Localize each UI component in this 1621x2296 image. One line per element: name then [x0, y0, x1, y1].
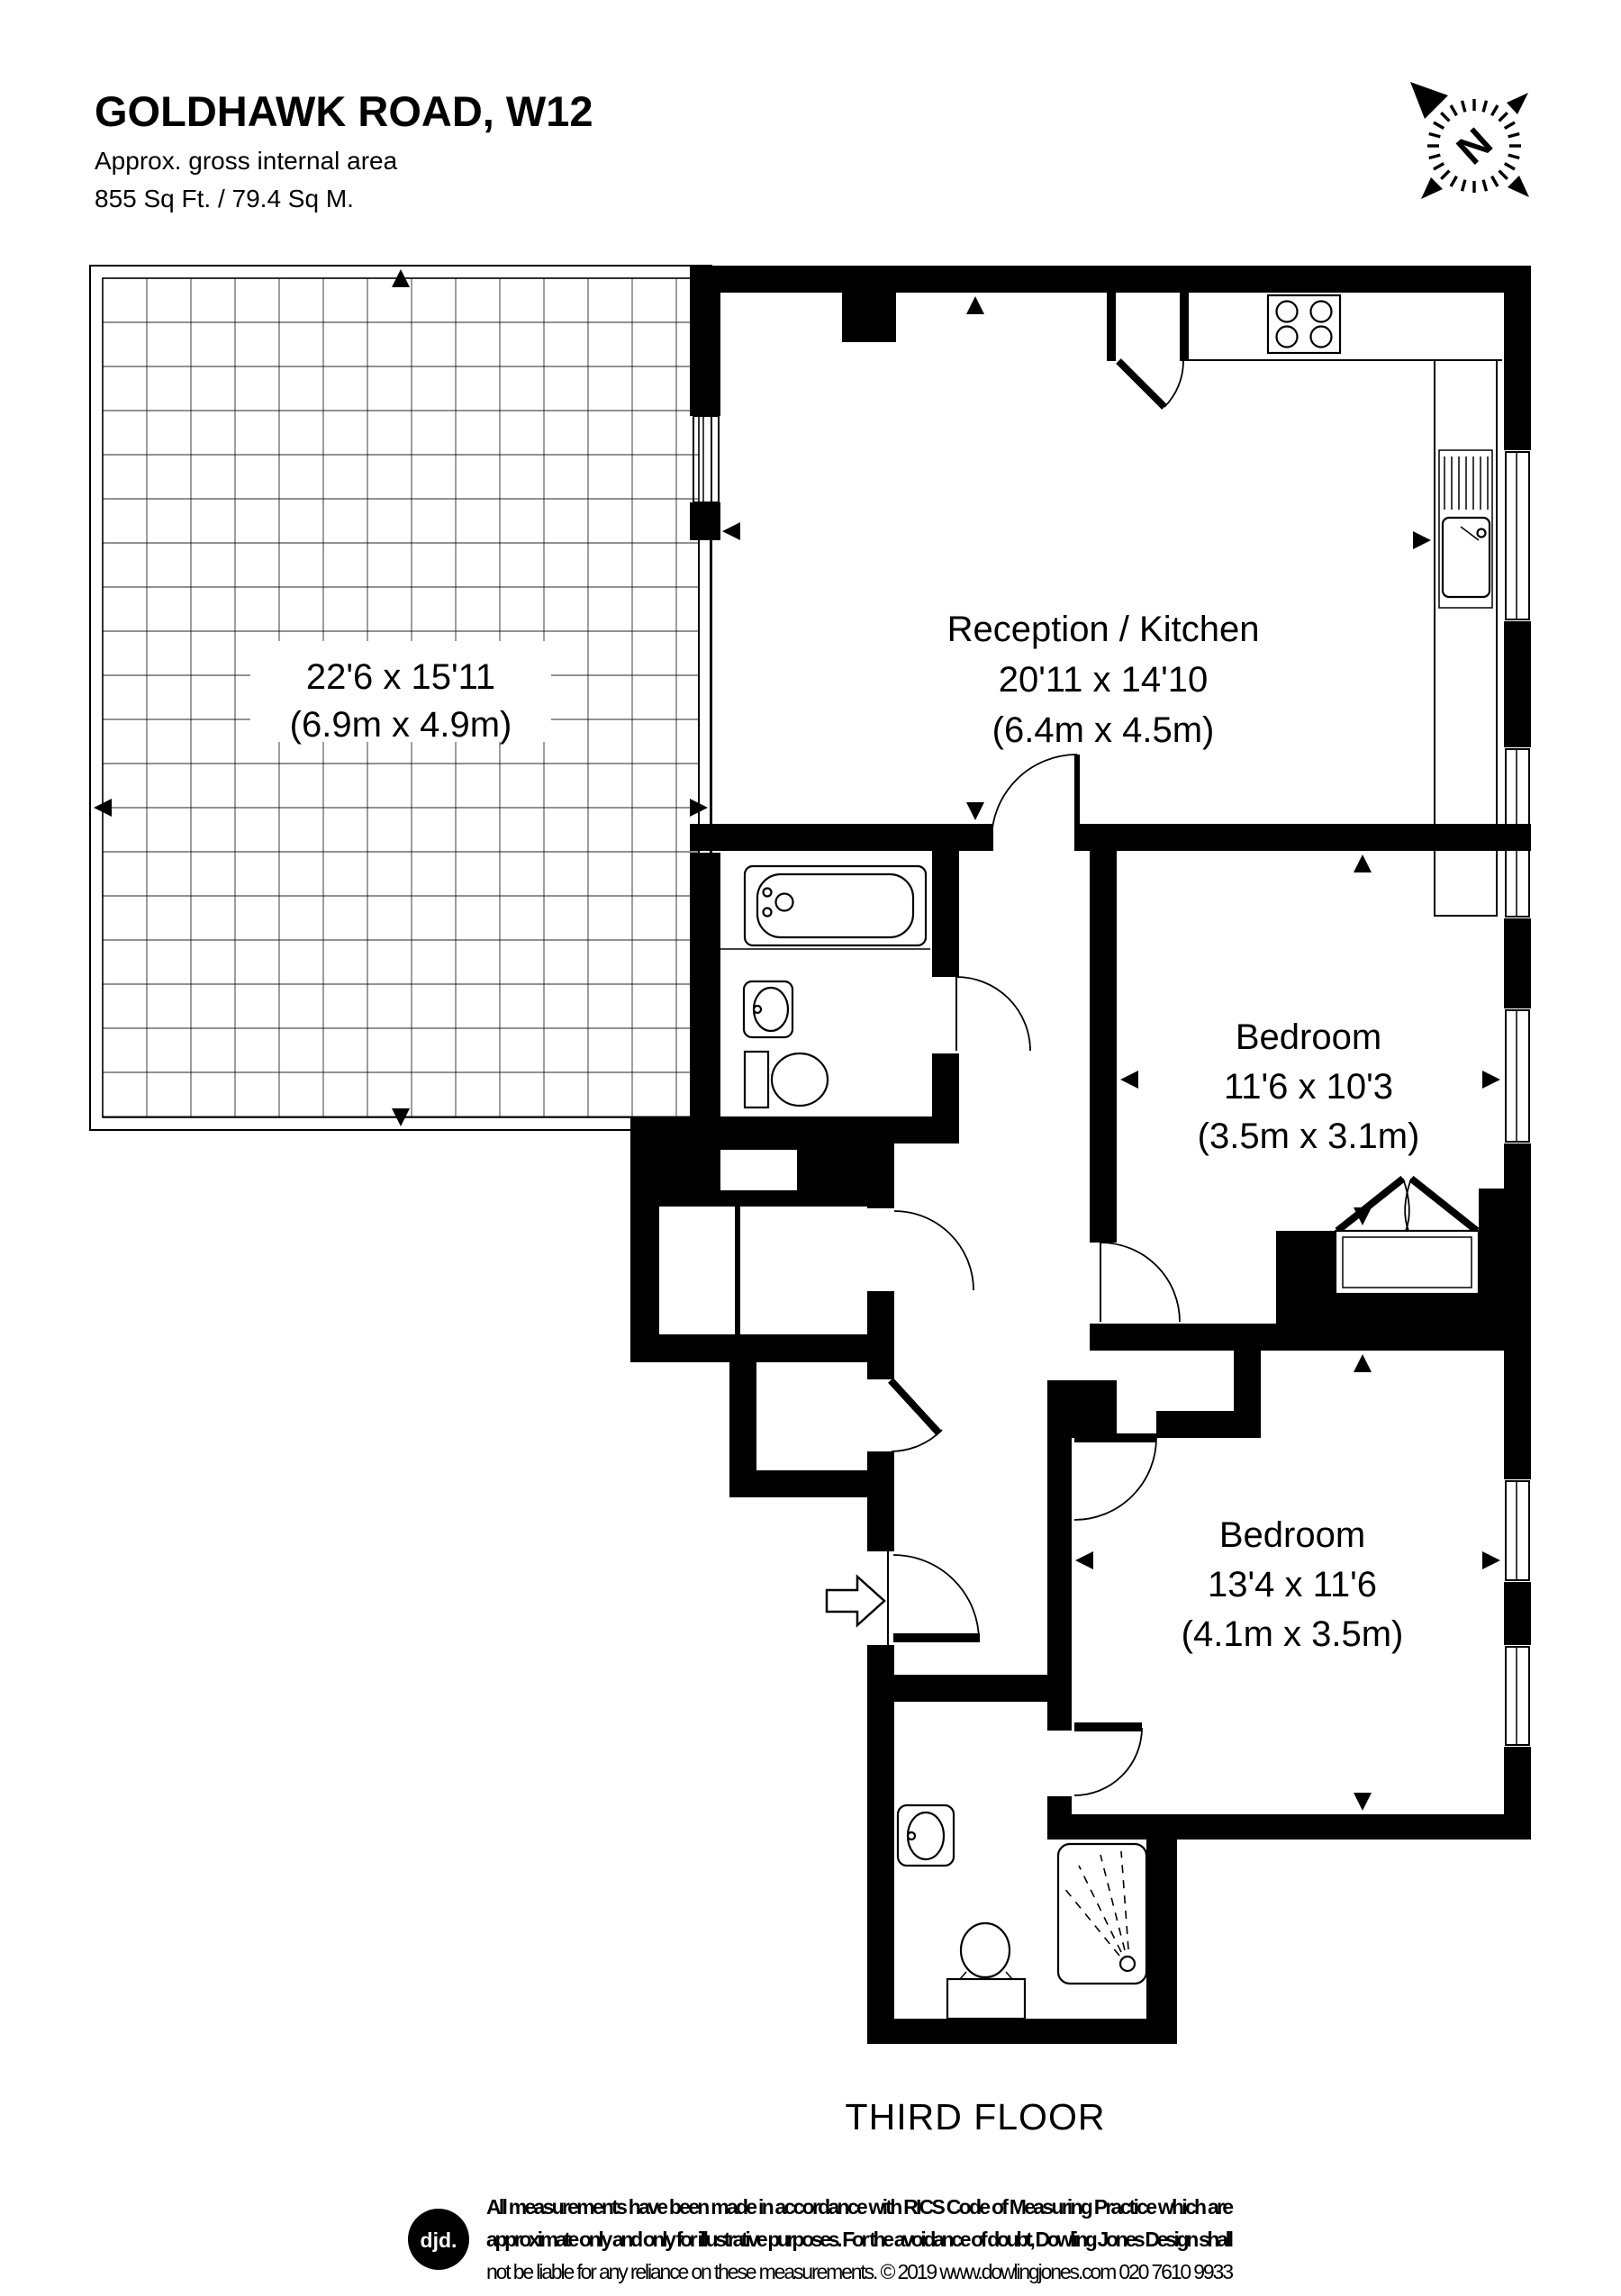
wall-wardrobe-back	[1336, 1294, 1479, 1324]
djd-logo-text: djd.	[421, 2228, 457, 2252]
dimension-arrow-up	[1354, 854, 1372, 872]
wardrobe-icon	[1336, 1231, 1479, 1294]
wall-bathroom-left	[690, 853, 720, 1143]
terrace-dims-metric: (6.9m x 4.9m)	[290, 705, 512, 745]
subtitle: Approx. gross internal area	[95, 147, 398, 175]
dimension-arrow-down	[966, 802, 984, 820]
floorplan-drawing: GOLDHAWK ROAD, W12 Approx. gross interna…	[0, 0, 1621, 2296]
area-text: 855 Sq Ft. / 79.4 Sq M.	[95, 185, 354, 212]
wall-right	[1504, 621, 1531, 747]
closet-niche	[720, 1150, 797, 1190]
dimension-arrow-up	[1354, 1354, 1372, 1372]
hob-icon	[1268, 295, 1340, 353]
shower-tray-icon	[1058, 1844, 1146, 1984]
dimension-arrow-left	[722, 522, 740, 540]
dimension-arrow-left	[1075, 1551, 1093, 1569]
wall-bedroom2-jog	[1234, 1351, 1261, 1438]
bedroom1-name: Bedroom	[1236, 1017, 1381, 1057]
reception-dims-imperial: 20'11 x 14'10	[999, 660, 1209, 700]
wall-right	[1504, 1143, 1531, 1479]
footer-line-1: All measurements have been made in accor…	[486, 2195, 1234, 2219]
floor-label: THIRD FLOOR	[846, 2096, 1106, 2138]
window	[1506, 1010, 1529, 1142]
footer: djd. All measurements have been made in …	[408, 2195, 1234, 2283]
footer-line-2: approximate only and only for illustrati…	[486, 2228, 1234, 2251]
wall-alcove	[1107, 293, 1116, 361]
wall-wardrobe-pier	[1276, 1231, 1336, 1324]
room-bedroom2: Bedroom 13'4 x 11'6 (4.1m x 3.5m)	[1182, 1515, 1404, 1654]
wall-showerroom-top	[867, 1675, 1047, 1702]
wall-bedroom2-top	[1156, 1411, 1234, 1438]
door-wardrobe	[1337, 1179, 1477, 1231]
closet-c	[756, 1362, 867, 1470]
closet-b-door-opening	[867, 1208, 894, 1291]
wall-hall-left	[867, 1645, 894, 2044]
dimension-arrow-right	[1482, 1071, 1500, 1089]
door-ensuite	[1074, 1722, 1142, 1795]
toilet-icon	[745, 1052, 828, 1107]
title-block: GOLDHAWK ROAD, W12 Approx. gross interna…	[95, 87, 593, 212]
closet-a	[659, 1207, 735, 1334]
closet-c-door-opening	[867, 1379, 894, 1451]
wall-alcove	[1180, 293, 1189, 361]
wall-right	[1504, 918, 1531, 1008]
wall-bedroom1-left	[1090, 851, 1117, 1243]
bedroom2-name: Bedroom	[1219, 1515, 1365, 1555]
toilet-icon	[947, 1923, 1025, 2019]
floorplan-page: GOLDHAWK ROAD, W12 Approx. gross interna…	[0, 0, 1621, 2296]
bedroom2-dims-metric: (4.1m x 3.5m)	[1182, 1614, 1404, 1654]
wall-bedroom2-bottom	[1047, 1814, 1531, 1840]
dimension-arrow-up	[966, 296, 984, 314]
reception-dims-metric: (6.4m x 4.5m)	[992, 710, 1215, 750]
room-reception-kitchen: Reception / Kitchen 20'11 x 14'10 (6.4m …	[947, 610, 1260, 750]
wall-top	[693, 266, 1531, 293]
wall-bedroom1-bottom	[1090, 1324, 1531, 1351]
wall-wardrobe-pier	[1479, 1189, 1506, 1324]
compass-icon: N	[1410, 82, 1529, 199]
sink-icon	[744, 981, 792, 1037]
window	[693, 416, 719, 502]
door-entrance	[888, 1551, 980, 1645]
wall-bedroom1-top	[1074, 824, 1531, 851]
compass-n-label: N	[1447, 119, 1500, 174]
sink-icon	[898, 1805, 954, 1866]
wall-terrace-divider	[690, 502, 720, 540]
room-terrace: 22'6 x 15'11 (6.9m x 4.9m)	[90, 266, 711, 1130]
room-bedroom1: Bedroom 11'6 x 10'3 (3.5m x 3.1m)	[1198, 1017, 1420, 1156]
dimension-arrow-left	[1120, 1071, 1138, 1089]
wall-right	[1504, 1582, 1531, 1645]
wall-terrace-divider	[690, 266, 720, 416]
wall-bathroom-right	[932, 851, 959, 977]
closet-b	[740, 1207, 867, 1334]
wall-reception-bottom	[690, 824, 993, 851]
bathtub-icon	[720, 866, 930, 949]
bedroom2-dims-imperial: 13'4 x 11'6	[1208, 1565, 1377, 1604]
door-kitchen-cupboard	[1118, 361, 1183, 407]
door-bedroom2	[1074, 1433, 1156, 1520]
compass-ne-arrow-icon	[1507, 93, 1528, 114]
door-bathroom	[956, 977, 1030, 1051]
wall-pier	[842, 293, 896, 342]
entrance-arrow-icon	[827, 1577, 884, 1625]
compass-se-arrow-icon	[1508, 176, 1529, 197]
page-title: GOLDHAWK ROAD, W12	[95, 87, 593, 135]
door-bedroom1	[1100, 1243, 1180, 1322]
wall-hall-jog	[1047, 1380, 1117, 1438]
wall-right	[1504, 266, 1531, 450]
window	[1506, 1481, 1529, 1580]
dimension-arrow-right	[1413, 531, 1431, 549]
door-reception-hall	[992, 755, 1077, 840]
wall-bedroom2-left	[1047, 1438, 1072, 1731]
door-closet-c	[891, 1380, 942, 1451]
bedroom1-dims-imperial: 11'6 x 10'3	[1224, 1067, 1393, 1107]
wall-shower-right	[1146, 1840, 1177, 2019]
wall-bottom	[867, 2019, 1177, 2044]
wall-hall-left	[867, 1497, 894, 1551]
window	[1506, 452, 1529, 619]
footer-line-3: not be liable for any reliance on these …	[486, 2260, 1234, 2283]
window	[1506, 1647, 1529, 1745]
compass-sw-arrow-icon	[1421, 177, 1443, 199]
dimension-arrow-down	[1354, 1793, 1372, 1811]
bedroom1-dims-metric: (3.5m x 3.1m)	[1198, 1116, 1420, 1156]
terrace-dims-imperial: 22'6 x 15'11	[306, 657, 495, 697]
reception-name: Reception / Kitchen	[947, 610, 1260, 649]
dimension-arrow-right	[1482, 1551, 1500, 1569]
